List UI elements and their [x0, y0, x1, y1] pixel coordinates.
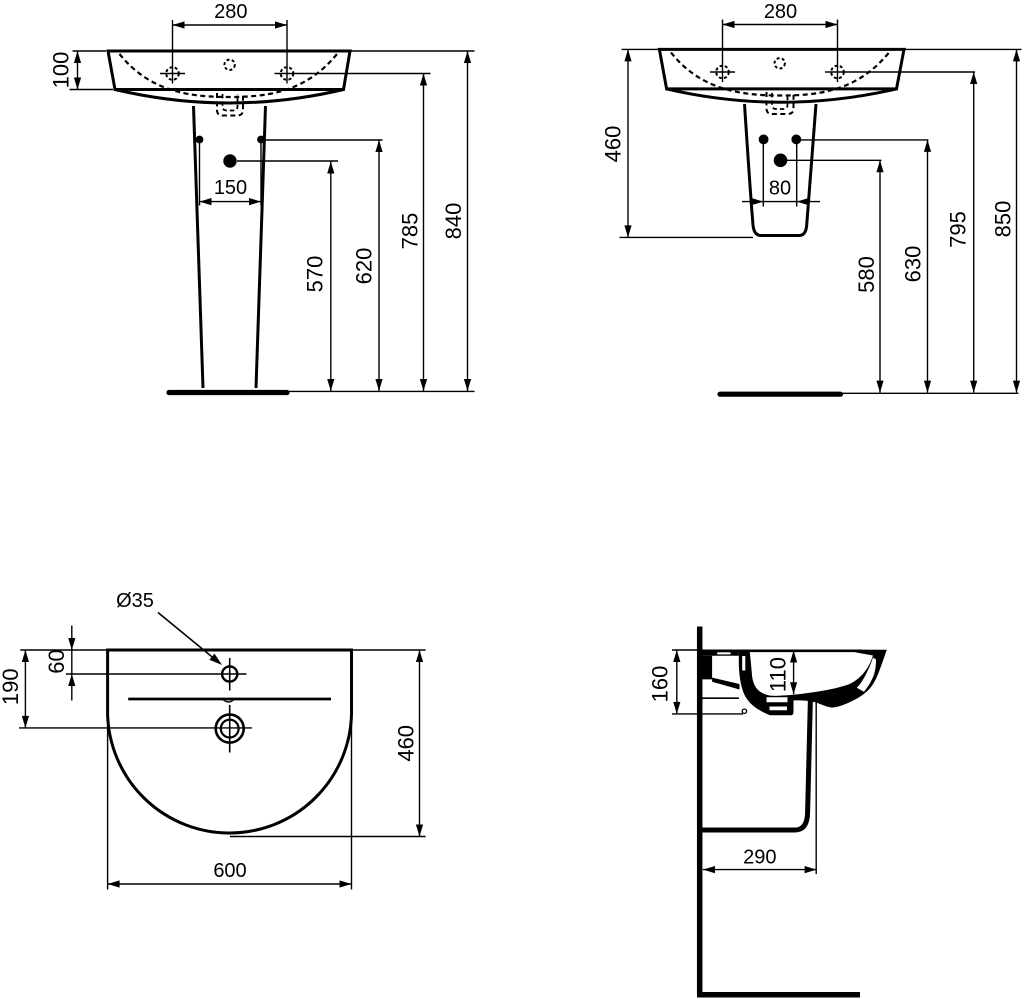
svg-text:110: 110	[765, 657, 790, 692]
svg-text:580: 580	[854, 256, 879, 293]
svg-text:80: 80	[769, 178, 791, 200]
svg-text:795: 795	[946, 211, 971, 248]
svg-text:630: 630	[900, 246, 925, 283]
svg-text:570: 570	[303, 256, 328, 293]
svg-text:850: 850	[991, 201, 1016, 238]
svg-text:620: 620	[352, 248, 377, 285]
svg-text:840: 840	[441, 203, 466, 240]
svg-text:100: 100	[49, 52, 74, 89]
svg-text:160: 160	[648, 666, 673, 703]
svg-text:280: 280	[214, 1, 247, 23]
svg-text:Ø35: Ø35	[116, 590, 154, 612]
svg-text:60: 60	[44, 649, 69, 673]
svg-text:280: 280	[764, 1, 797, 23]
svg-text:460: 460	[394, 725, 419, 762]
svg-text:785: 785	[398, 213, 423, 250]
svg-text:290: 290	[743, 846, 776, 868]
svg-text:150: 150	[214, 177, 247, 199]
svg-text:600: 600	[213, 860, 246, 882]
svg-text:190: 190	[0, 668, 23, 705]
svg-text:460: 460	[601, 126, 626, 163]
